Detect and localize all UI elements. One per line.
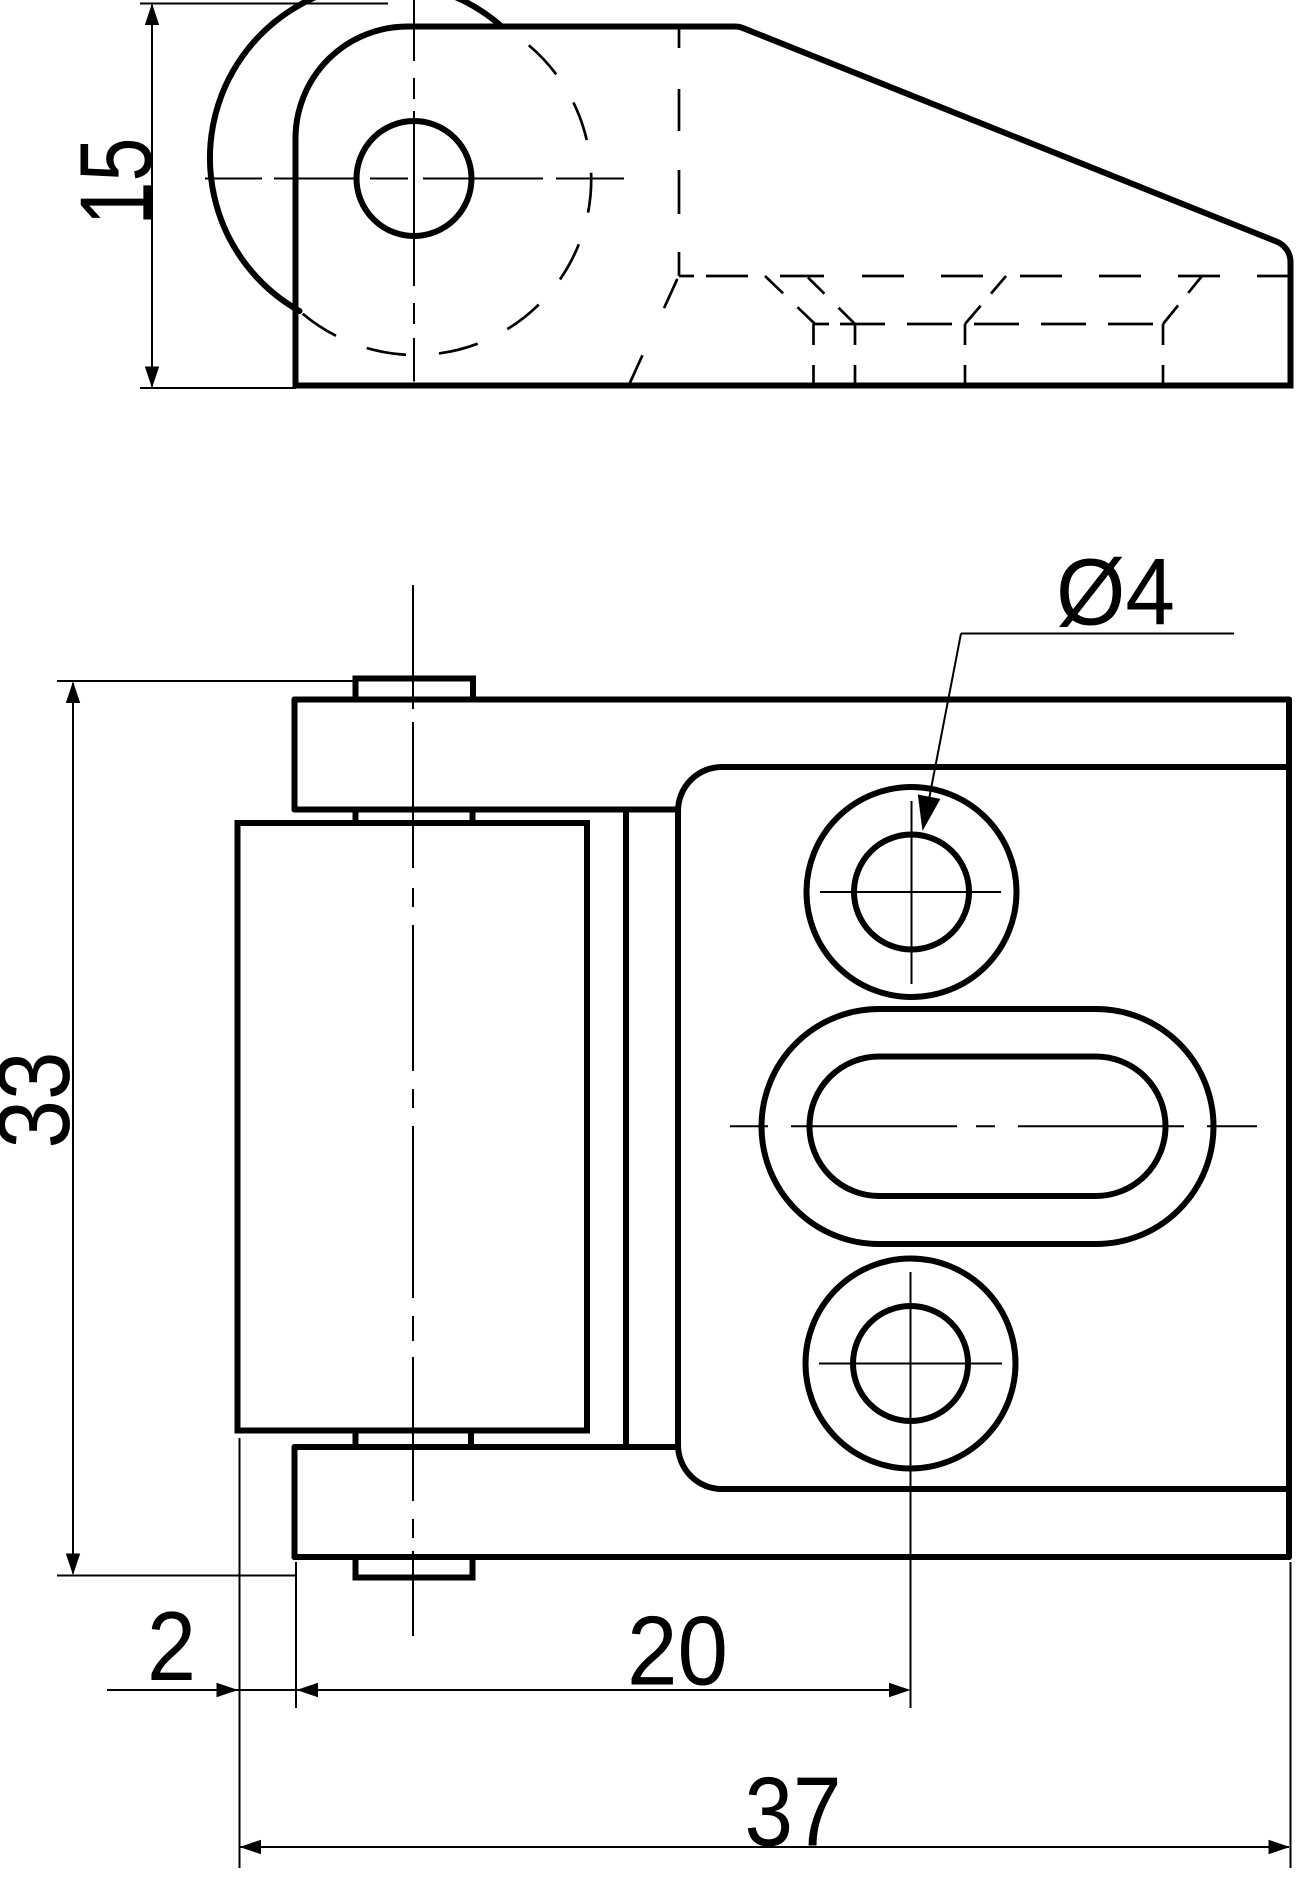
svg-text:37: 37 <box>745 1757 842 1867</box>
svg-text:15: 15 <box>59 138 173 226</box>
svg-text:Ø4: Ø4 <box>1056 540 1175 646</box>
svg-text:2: 2 <box>147 1591 196 1701</box>
svg-text:33: 33 <box>0 1052 91 1149</box>
svg-text:20: 20 <box>627 1596 728 1706</box>
